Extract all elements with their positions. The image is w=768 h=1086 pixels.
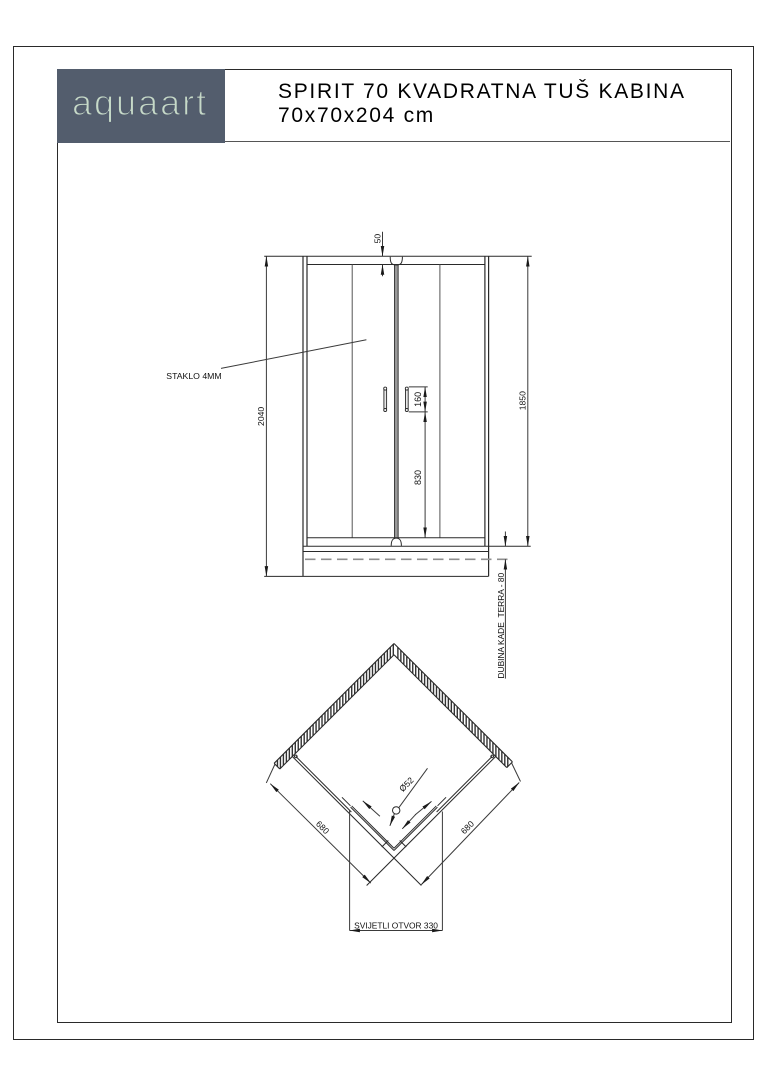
svg-text:DUBINA KADE TERRA - 80: DUBINA KADE TERRA - 80 (496, 573, 506, 679)
svg-text:STAKLO 4MM: STAKLO 4MM (166, 371, 221, 381)
svg-text:1850: 1850 (518, 391, 528, 410)
svg-text:160: 160 (413, 392, 423, 407)
svg-text:680: 680 (459, 819, 476, 836)
svg-text:830: 830 (413, 470, 423, 485)
svg-text:SVIJETLI OTVOR 330: SVIJETLI OTVOR 330 (354, 920, 438, 930)
svg-text:Ø52: Ø52 (397, 775, 416, 794)
svg-text:680: 680 (314, 819, 331, 836)
svg-text:50: 50 (372, 234, 382, 244)
svg-text:2040: 2040 (256, 407, 266, 426)
